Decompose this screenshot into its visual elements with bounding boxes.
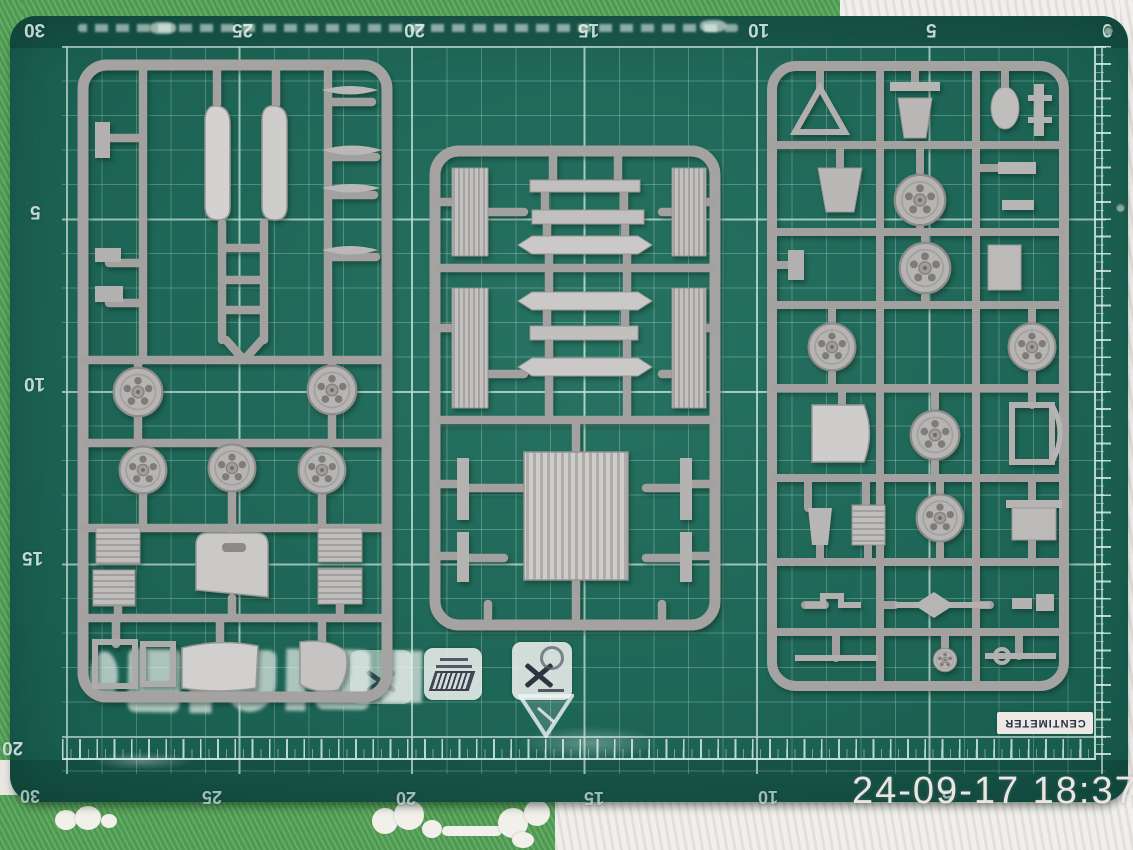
oval-part <box>991 87 1019 129</box>
no-cut-pictogram-icon <box>512 642 572 700</box>
wheel-part <box>308 366 357 415</box>
post-part <box>680 458 692 520</box>
mat-number: 15 <box>584 787 604 808</box>
mat-number: 10 <box>748 18 769 40</box>
grille-box-part <box>93 570 135 606</box>
curved-panel-part <box>812 405 870 462</box>
mat-hole <box>1116 203 1125 212</box>
bar-part <box>1012 598 1032 609</box>
board-part <box>530 180 640 192</box>
bar-part <box>998 162 1036 174</box>
sprue-runners <box>775 70 1061 682</box>
mat-number: 5 <box>30 200 41 222</box>
lace-doily <box>55 806 135 846</box>
mat-top-band <box>10 16 1128 48</box>
bar-part <box>1002 200 1034 210</box>
bracket-part <box>95 122 110 158</box>
plank-part <box>518 236 652 254</box>
grille-box-part <box>318 568 362 604</box>
post-part <box>1034 84 1044 136</box>
mat-number: 15 <box>22 546 43 568</box>
bracket-part <box>788 250 804 280</box>
mat-number: 10 <box>24 372 45 394</box>
sprue-left-cab-and-wheels <box>76 58 394 704</box>
board-part <box>532 210 644 224</box>
slat-panel-part <box>452 288 488 408</box>
grille-box-part <box>852 505 885 545</box>
post-part <box>457 532 469 582</box>
fender-part <box>300 641 347 691</box>
mat-number: 25 <box>202 786 222 807</box>
sprue-middle-flatbed <box>428 144 722 632</box>
slat-panel-part <box>452 168 488 256</box>
slat-panel-part <box>672 168 706 256</box>
photo: 30 25 20 15 10 5 0 5 10 15 20 30 25 20 1… <box>0 0 1133 850</box>
bracket-part <box>95 248 121 262</box>
mat-brand-smallprint <box>78 24 738 32</box>
wheel-part <box>895 175 945 225</box>
blade-pictogram-icon <box>424 648 482 700</box>
sprue-right-fittings <box>766 60 1070 692</box>
wheel-part <box>209 445 256 492</box>
hopper-part <box>818 168 862 212</box>
corrugated-panel-part <box>524 452 628 580</box>
cab-roof-part <box>196 533 268 597</box>
mat-right-ruler <box>1094 46 1113 758</box>
wheel-part <box>917 495 964 542</box>
axle-hub-part <box>914 592 954 618</box>
seat-part <box>898 98 932 138</box>
panel-part <box>988 245 1021 290</box>
centimeter-label: CENTIMETER <box>997 712 1093 734</box>
mat-number: 30 <box>24 18 45 40</box>
wheel-part <box>114 368 163 417</box>
door-frame-part <box>1012 405 1052 462</box>
wheel-part <box>900 243 950 293</box>
roof-slot <box>222 543 246 552</box>
mat-brand-logo-icon <box>150 22 176 34</box>
plank-part <box>518 358 652 376</box>
post-part <box>457 458 469 520</box>
window-frame-part <box>95 642 135 686</box>
mat-bottom-ruler <box>62 737 1096 760</box>
wheel-part <box>911 411 960 460</box>
mat-hole <box>1104 26 1113 35</box>
bracket-part <box>95 286 123 302</box>
cab-half-part <box>205 106 230 220</box>
board-part <box>530 326 638 340</box>
trapezoid-part <box>808 508 832 545</box>
wheel-part <box>809 324 856 371</box>
slat-panel-part <box>672 288 706 408</box>
mat-number: 30 <box>20 785 40 806</box>
plank-part <box>518 292 652 310</box>
mat-number: 10 <box>758 786 778 807</box>
post-part <box>680 532 692 582</box>
mat-number: 20 <box>2 736 23 758</box>
lid-part <box>1006 500 1062 508</box>
a-frame-part <box>795 88 845 132</box>
timestamp-overlay: 24-09-17 18:37 <box>852 770 1128 813</box>
wheel-part <box>1009 324 1056 371</box>
small-wheel-part <box>933 648 956 671</box>
windshield-part <box>182 642 258 691</box>
window-frame-part <box>143 644 173 684</box>
wheel-part <box>120 447 167 494</box>
mat-number: 20 <box>396 787 416 808</box>
grille-box-part <box>318 528 362 562</box>
axle-bracket-part <box>805 596 861 605</box>
grille-box-part <box>96 528 140 564</box>
mat-brand-logo-icon <box>700 20 726 32</box>
box-part <box>1012 508 1056 540</box>
cab-half-part <box>262 106 287 220</box>
sprue-parts <box>93 86 382 691</box>
mat-number: 5 <box>926 18 937 40</box>
warning-triangle-icon <box>518 694 574 738</box>
crossbar-part <box>890 82 940 91</box>
bar-part <box>1036 594 1054 611</box>
wheel-part <box>299 447 346 494</box>
